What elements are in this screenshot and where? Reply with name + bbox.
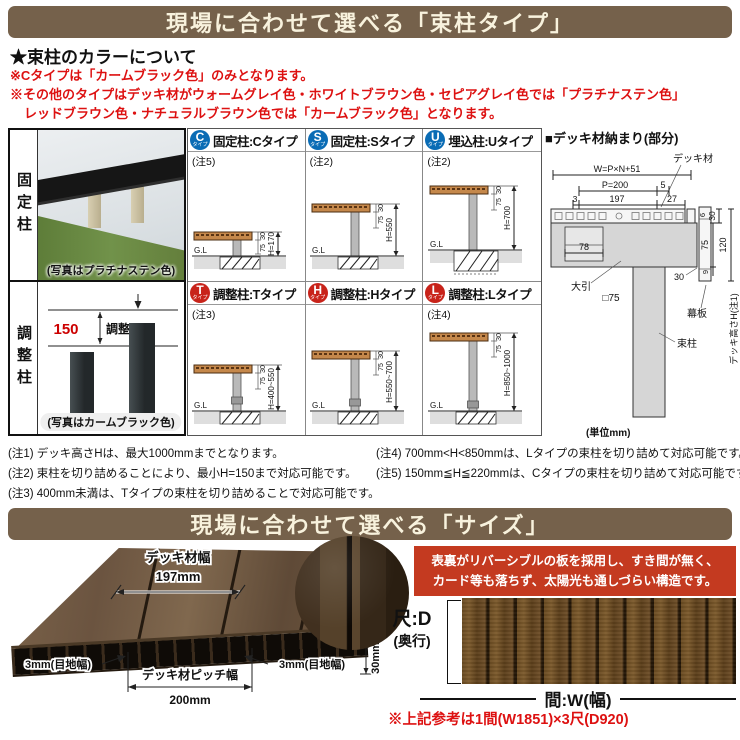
post-photo-panel: 固定柱 (写真はプラチナステン色) 調整柱	[8, 128, 186, 436]
svg-text:G.L: G.L	[430, 401, 443, 410]
feature-box: 表裏がリバーシブルの板を採用し、すき間が無く、 カード等も落ちず、太陽光も通しづ…	[414, 546, 736, 596]
svg-text:30: 30	[674, 272, 684, 282]
svg-text:75: 75	[378, 216, 385, 224]
type-note-s: (注2)	[310, 154, 333, 169]
svg-text:150: 150	[53, 321, 78, 338]
svg-text:大引: 大引	[571, 280, 591, 293]
svg-text:H=170: H=170	[267, 232, 276, 256]
svg-text:120: 120	[718, 237, 728, 252]
type-cell-s: S タイプ 固定柱:Sタイプ (注2) G.L 30 75	[306, 129, 424, 282]
svg-text:200mm: 200mm	[169, 693, 210, 707]
svg-text:3mm(目地幅): 3mm(目地幅)	[25, 657, 91, 671]
type-title-l: 調整柱:Lタイプ	[448, 284, 531, 303]
banner-size: 現場に合わせて選べる「サイズ」	[8, 508, 732, 540]
adjust-post-caption: (写真はカームブラック色)	[40, 413, 181, 431]
fixed-post-caption: (写真はプラチナステン色)	[38, 262, 184, 278]
svg-text:W=P×N+51: W=P×N+51	[594, 164, 641, 174]
type-header-t: T タイプ 調整柱:Tタイプ	[188, 282, 305, 305]
svg-text:75: 75	[260, 377, 267, 385]
color-note-2: ※その他のタイプはデッキ材がウォームグレイ色・ホワイトブラウン色・セピアグレイ色…	[10, 87, 685, 102]
type-diagram-l: G.L 30 75 H=850~1000	[424, 309, 540, 435]
adjust-annotation: 150 調整	[38, 282, 184, 434]
svg-text:G.L: G.L	[312, 246, 325, 255]
type-badge-h: H タイプ	[308, 283, 328, 303]
color-notes: ※Cタイプは「カームブラック色」のみとなります。 ※その他のタイプはデッキ材がウ…	[10, 66, 685, 123]
type-cell-h: H タイプ 調整柱:Hタイプ G.L 30	[306, 282, 424, 435]
type-header-c: C タイプ 固定柱:Cタイプ	[188, 129, 305, 152]
type-cell-l: L タイプ 調整柱:Lタイプ (注4) G.L 30	[423, 282, 541, 435]
svg-text:5: 5	[660, 180, 665, 190]
deck-beam-photo	[38, 149, 184, 205]
svg-text:3: 3	[573, 194, 578, 204]
svg-text:30: 30	[260, 232, 267, 240]
deck-plan-sample	[462, 598, 736, 684]
feature-line-1: 表裏がリバーシブルの板を採用し、すき間が無く、	[431, 551, 718, 571]
type-title-s: 固定柱:Sタイプ	[331, 131, 415, 150]
svg-text:75: 75	[700, 240, 710, 250]
svg-text:197mm: 197mm	[156, 569, 201, 584]
type-title-c: 固定柱:Cタイプ	[213, 131, 297, 150]
svg-text:3mm(目地幅): 3mm(目地幅)	[279, 657, 345, 671]
type-badge-u: U タイプ	[425, 130, 445, 150]
svg-text:30: 30	[496, 333, 503, 341]
banner-post-type-title: 現場に合わせて選べる「束柱タイプ」	[166, 6, 574, 38]
type-diagram-s: G.L 30 75 H=550	[306, 156, 422, 282]
adjust-post-box: 調整柱 150 調整 (	[10, 282, 184, 434]
depth-bracket	[447, 600, 461, 684]
type-header-h: H タイプ 調整柱:Hタイプ	[306, 282, 423, 305]
type-badge-t: T タイプ	[190, 283, 210, 303]
note-4: (注4) 700mm<H<850mmは、Lタイプの束柱を切り詰めて対応可能です。	[376, 448, 740, 460]
svg-text:9: 9	[701, 270, 710, 274]
adjust-post-label: 調整柱	[10, 282, 38, 434]
svg-text:75: 75	[378, 363, 385, 371]
adjust-post-photo: 150 調整 (写真はカームブラック色)	[38, 282, 184, 434]
deck-detail-panel: ■デッキ材納まり(部分) デッキ材 W=P×N+51 P=200 5 3 197…	[545, 128, 737, 428]
svg-text:197: 197	[609, 194, 624, 204]
notes-right: (注4) 700mm<H<850mmは、Lタイプの束柱を切り詰めて対応可能です。…	[376, 444, 740, 484]
unit-label: (単位mm)	[586, 424, 630, 439]
svg-text:H=550: H=550	[385, 218, 394, 242]
fixed-post-label: 固定柱	[10, 130, 38, 280]
svg-text:束柱: 束柱	[677, 337, 697, 350]
fixed-post-photo: (写真はプラチナステン色)	[38, 130, 184, 280]
reference-note: ※上記参考は1間(W1851)×3尺(D920)	[388, 708, 629, 729]
notes-left: (注1) デッキ高さHは、最大1000mmまでとなります。 (注2) 束柱を切り…	[8, 444, 380, 504]
svg-text:30: 30	[378, 204, 385, 212]
note-5: (注5) 150mm≦H≦220mmは、Cタイプの束柱を切り詰めて対応可能です。	[376, 468, 740, 480]
svg-text:デッキ材ピッチ幅: デッキ材ピッチ幅	[142, 667, 238, 682]
note-2: (注2) 束柱を切り詰めることにより、最小H=150まで対応可能です。	[8, 468, 357, 480]
svg-text:27: 27	[667, 194, 677, 204]
svg-text:P=200: P=200	[602, 180, 628, 190]
svg-text:75: 75	[496, 198, 503, 206]
svg-text:30: 30	[496, 186, 503, 194]
width-line-right	[620, 698, 736, 700]
svg-text:G.L: G.L	[312, 401, 325, 410]
banner-size-title: 現場に合わせて選べる「サイズ」	[190, 508, 549, 540]
type-note-c: (注5)	[192, 154, 215, 169]
type-diagram-c: G.L 30 75 H=170	[188, 156, 304, 282]
width-line-left	[420, 698, 536, 700]
type-badge-c: C タイプ	[190, 130, 210, 150]
depth-label: 尺:D (奥行)	[380, 604, 444, 651]
svg-text:78: 78	[579, 242, 589, 252]
type-header-l: L タイプ 調整柱:Lタイプ	[423, 282, 541, 305]
svg-text:6: 6	[698, 213, 707, 217]
type-badge-s: S タイプ	[308, 130, 328, 150]
page: 現場に合わせて選べる「束柱タイプ」 ★束柱のカラーについて ※Cタイプは「カーム…	[0, 0, 740, 740]
fixed-post-box: 固定柱 (写真はプラチナステン色)	[10, 130, 184, 282]
type-diagram-u: G.L 30 75 H=700	[424, 156, 540, 282]
svg-text:G.L: G.L	[194, 246, 207, 255]
svg-text:G.L: G.L	[194, 401, 207, 410]
svg-text:H=850~1000: H=850~1000	[503, 349, 512, 396]
svg-text:幕板: 幕板	[687, 307, 707, 320]
type-badge-l: L タイプ	[425, 283, 445, 303]
svg-text:調整: 調整	[106, 321, 130, 336]
svg-text:H=700: H=700	[503, 206, 512, 230]
adjust-post-tall	[129, 323, 155, 415]
type-cell-t: T タイプ 調整柱:Tタイプ (注3) G.L 30	[188, 282, 306, 435]
svg-text:H=550~700: H=550~700	[385, 361, 394, 403]
type-cell-u: U タイプ 埋込柱:Uタイプ (注2) G.L 30	[423, 129, 541, 282]
type-title-u: 埋込柱:Uタイプ	[448, 131, 532, 150]
svg-text:H=400~550: H=400~550	[267, 368, 276, 410]
svg-text:30: 30	[378, 351, 385, 359]
svg-text:G.L: G.L	[430, 240, 443, 249]
type-cell-c: C タイプ 固定柱:Cタイプ (注5) G.L 30 75	[188, 129, 306, 282]
detail-heading: ■デッキ材納まり(部分)	[545, 128, 737, 147]
post-type-grid: C タイプ 固定柱:Cタイプ (注5) G.L 30 75	[187, 128, 542, 436]
adjust-post-short	[70, 352, 94, 414]
type-header-s: S タイプ 固定柱:Sタイプ	[306, 129, 423, 152]
svg-text:30: 30	[260, 365, 267, 373]
deck-post-photo-left	[88, 190, 101, 228]
svg-text:75: 75	[496, 345, 503, 353]
svg-text:デッキ材: デッキ材	[673, 152, 713, 165]
type-note-l: (注4)	[427, 307, 450, 322]
type-note-u: (注2)	[427, 154, 450, 169]
svg-text:30: 30	[707, 211, 717, 221]
note-3: (注3) 400mm未満は、Tタイプの束柱を切り詰めることで対応可能です。	[8, 488, 380, 500]
color-note-3: レッドブラウン色・ナチュラルブラウン色では「カームブラック色」となります。	[10, 104, 685, 123]
svg-text:デッキ材幅: デッキ材幅	[145, 550, 210, 565]
color-section-heading: ★束柱のカラーについて	[10, 43, 197, 68]
banner-post-type: 現場に合わせて選べる「束柱タイプ」	[8, 6, 732, 38]
type-note-t: (注3)	[192, 307, 215, 322]
type-diagram-h: G.L 30 75 H=550~700	[306, 309, 422, 435]
detail-diagram: デッキ材 W=P×N+51 P=200 5 3 197 27	[545, 149, 740, 429]
feature-line-2: カード等も落ちず、太陽光も通しづらい構造です。	[433, 571, 718, 591]
color-note-1: ※Cタイプは「カームブラック色」のみとなります。	[10, 68, 313, 83]
type-title-h: 調整柱:Hタイプ	[331, 284, 415, 303]
svg-text:□75: □75	[602, 293, 620, 304]
type-title-t: 調整柱:Tタイプ	[213, 284, 296, 303]
note-1: (注1) デッキ高さHは、最大1000mmまでとなります。	[8, 448, 284, 460]
svg-text:デッキ高さH(注1): デッキ高さH(注1)	[728, 293, 739, 365]
svg-text:75: 75	[260, 244, 267, 252]
type-header-u: U タイプ 埋込柱:Uタイプ	[423, 129, 541, 152]
type-diagram-t: G.L 30 75 H=400~550	[188, 309, 304, 435]
